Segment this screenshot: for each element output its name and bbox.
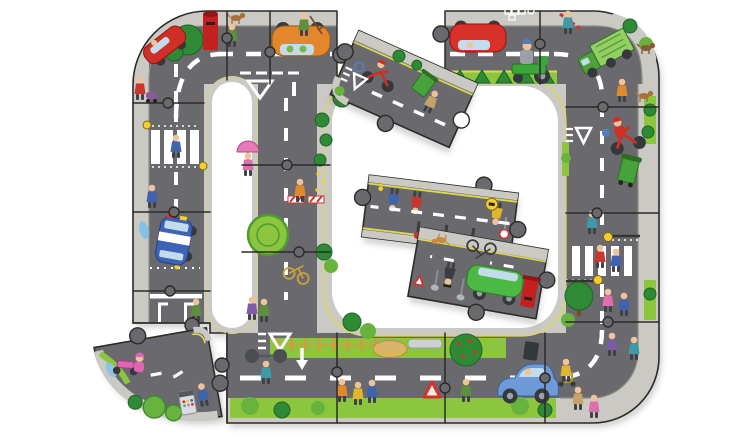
litter-bin — [523, 341, 539, 361]
jigsaw-tab — [433, 26, 449, 42]
bush — [241, 397, 259, 415]
bush — [311, 401, 325, 415]
red-car-upside-down — [450, 21, 506, 53]
lollipop-sign — [499, 229, 509, 239]
bush — [644, 104, 656, 116]
tree-top — [248, 215, 288, 255]
bush — [360, 323, 376, 339]
bench — [408, 339, 442, 348]
bush — [561, 153, 571, 163]
bush — [644, 288, 656, 300]
apple-tree — [450, 334, 482, 366]
bush — [561, 313, 575, 327]
stop-line — [150, 294, 202, 299]
bush — [324, 259, 338, 273]
hay-pile — [373, 341, 407, 358]
police-cap — [443, 285, 451, 286]
belisha-beacon — [143, 121, 151, 129]
u-gap — [207, 77, 257, 333]
belisha-beacon — [199, 162, 207, 170]
belisha-beacon — [604, 233, 613, 242]
edge-tab — [215, 358, 229, 372]
bush — [314, 154, 326, 166]
bush — [642, 126, 654, 138]
cyclist-helmet — [602, 129, 610, 137]
bush — [320, 134, 332, 146]
puzzle-illustration — [0, 0, 750, 440]
bush — [343, 313, 361, 331]
postbox — [203, 11, 218, 50]
bush — [274, 402, 290, 418]
gap-cutout — [212, 82, 252, 328]
belisha-beacon — [594, 276, 603, 285]
bush — [315, 113, 329, 127]
puzzle-product-photo — [0, 0, 750, 440]
